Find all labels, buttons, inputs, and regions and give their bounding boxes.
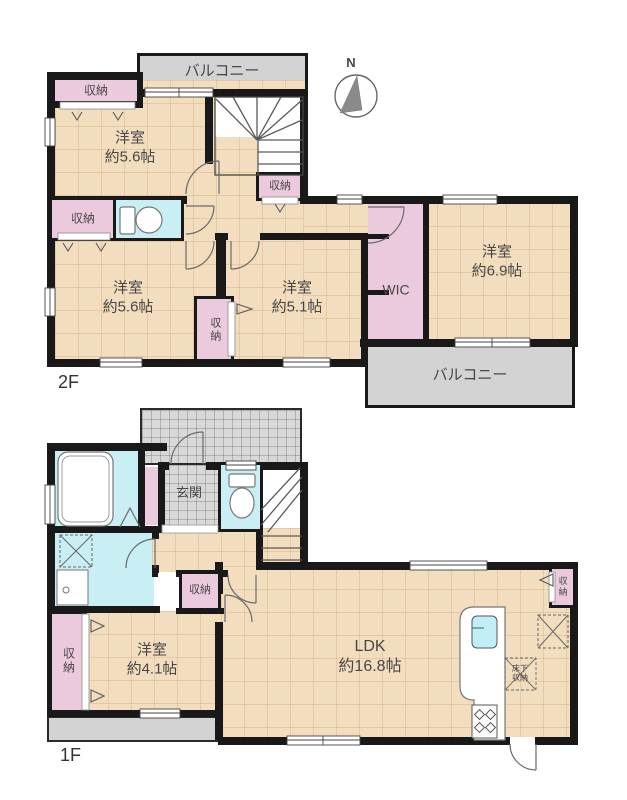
terrace-1f bbox=[47, 716, 222, 742]
bathroom-area bbox=[53, 448, 140, 527]
entry-closet-area bbox=[143, 467, 158, 525]
floor-2f-label: 2F bbox=[58, 371, 79, 394]
room-2f-e-label: 洋室約6.9帖 bbox=[472, 243, 523, 281]
compass-n-label: N bbox=[346, 55, 355, 71]
toilet-room-1f bbox=[218, 462, 263, 532]
room-2f-s-label: 洋室約5.1帖 bbox=[272, 279, 323, 317]
floor-plan: N バルコニー 収納 洋室約5.6帖 収納 収納 洋室約5.6帖 収納 洋室約5… bbox=[0, 0, 627, 800]
ldk-label: LDK約16.8帖 bbox=[338, 637, 401, 677]
room-2f-nw-label: 洋室約5.6帖 bbox=[105, 129, 156, 167]
room-1f-sw-label: 洋室約4.1帖 bbox=[127, 641, 178, 679]
closet-1f-hall-label: 収納 bbox=[189, 584, 211, 598]
closet-2f-topleft-label: 収納 bbox=[84, 84, 108, 99]
wic-label: WIC bbox=[382, 281, 409, 299]
corridor-1f bbox=[158, 572, 180, 612]
room-2f-sw-label: 洋室約5.6帖 bbox=[103, 279, 154, 317]
closet-2f-left-label: 収納 bbox=[71, 212, 95, 227]
balcony-2f-north-label: バルコニー bbox=[185, 63, 260, 82]
balcony-2f-south-label: バルコニー bbox=[433, 367, 508, 386]
closet-2f-stair-label: 収納 bbox=[269, 180, 291, 194]
floor-storage-label: 床下収納 bbox=[510, 665, 530, 683]
entrance-porch bbox=[140, 408, 302, 465]
toilet-room-2f bbox=[110, 197, 184, 241]
wic-area bbox=[368, 204, 423, 340]
stairwell-2f-lower bbox=[258, 137, 303, 175]
floor-1f-label: 1F bbox=[60, 744, 81, 767]
closet-1f-ldk-label: 収納 bbox=[556, 576, 567, 598]
stairwell-2f-upper bbox=[215, 97, 303, 137]
compass-icon bbox=[335, 75, 377, 117]
genkan-label: 玄関 bbox=[176, 485, 202, 501]
washroom-area bbox=[53, 531, 154, 607]
closet-2f-mid-label: 収納 bbox=[207, 317, 221, 343]
closet-1f-bedroom-label: 収納 bbox=[61, 647, 76, 675]
